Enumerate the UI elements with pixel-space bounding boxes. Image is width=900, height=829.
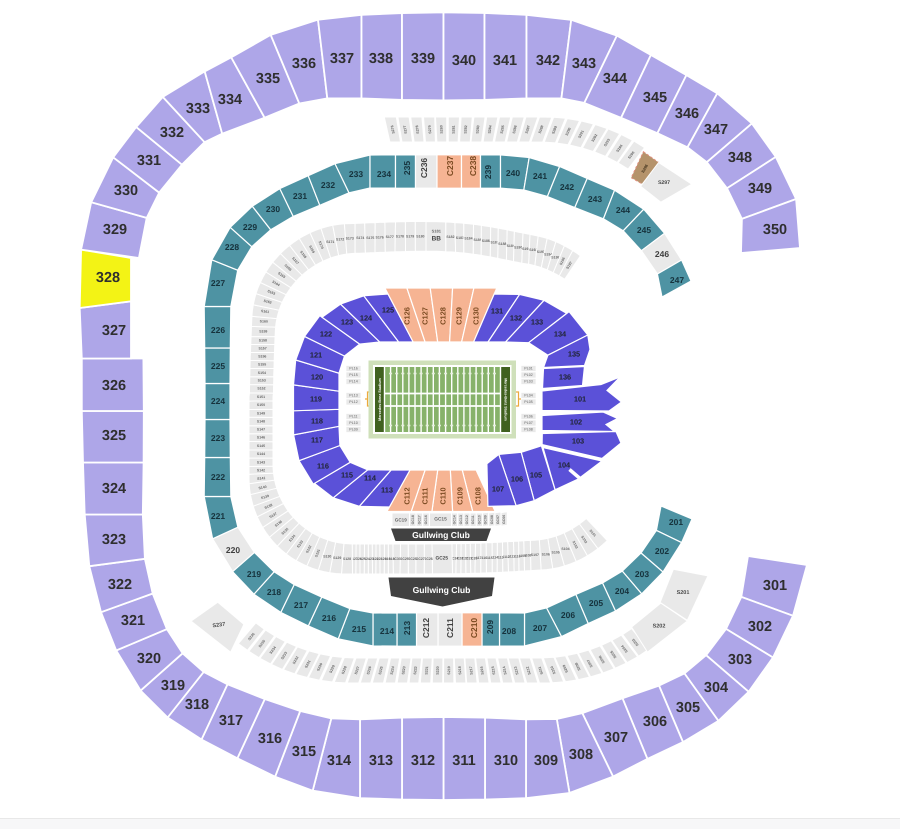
svg-text:204: 204 (615, 586, 629, 596)
svg-text:PL07: PL07 (524, 421, 532, 425)
svg-text:PL10: PL10 (349, 421, 357, 425)
svg-text:218: 218 (267, 587, 281, 597)
svg-text:214: 214 (380, 626, 394, 636)
svg-text:GC29: GC29 (400, 557, 409, 561)
svg-text:S172: S172 (336, 238, 344, 242)
svg-text:GC17: GC17 (417, 515, 421, 524)
svg-text:S143: S143 (257, 460, 265, 464)
svg-text:310: 310 (494, 753, 518, 769)
svg-text:S282: S282 (464, 125, 469, 134)
svg-text:213: 213 (402, 621, 412, 635)
svg-text:GC28: GC28 (408, 557, 417, 561)
svg-text:234: 234 (377, 169, 391, 179)
svg-text:233: 233 (349, 169, 363, 179)
svg-text:216: 216 (322, 613, 336, 623)
svg-text:S174: S174 (356, 236, 364, 240)
svg-text:328: 328 (96, 270, 120, 286)
svg-text:102: 102 (570, 418, 582, 427)
svg-text:S188: S188 (498, 242, 506, 246)
svg-text:322: 322 (108, 577, 132, 593)
svg-text:S128: S128 (343, 557, 351, 561)
svg-text:PL04: PL04 (524, 394, 532, 398)
svg-text:S150: S150 (257, 403, 265, 407)
svg-text:C129: C129 (455, 307, 464, 325)
svg-text:124: 124 (360, 314, 373, 323)
svg-text:105: 105 (530, 471, 542, 480)
svg-text:223: 223 (211, 433, 225, 443)
svg-text:C236: C236 (419, 158, 429, 179)
svg-text:349: 349 (748, 181, 772, 197)
svg-text:301: 301 (763, 578, 787, 594)
svg-text:134: 134 (554, 330, 567, 339)
svg-text:240: 240 (506, 168, 520, 178)
svg-text:342: 342 (536, 53, 560, 69)
svg-text:PL12: PL12 (349, 400, 357, 404)
svg-text:Mercedes-Benz Stadium: Mercedes-Benz Stadium (504, 378, 508, 421)
svg-text:114: 114 (364, 474, 377, 483)
svg-text:PL03: PL03 (524, 380, 532, 384)
svg-text:239: 239 (483, 165, 493, 179)
svg-text:201: 201 (669, 517, 683, 527)
svg-text:S182: S182 (446, 235, 454, 239)
svg-text:335: 335 (256, 71, 280, 87)
svg-text:202: 202 (655, 546, 669, 556)
svg-text:324: 324 (102, 481, 126, 497)
svg-text:313: 313 (369, 753, 393, 769)
svg-text:GC26: GC26 (424, 557, 433, 561)
svg-text:135: 135 (568, 350, 580, 359)
svg-text:C126: C126 (403, 307, 412, 325)
svg-text:103: 103 (572, 437, 584, 446)
svg-text:113: 113 (381, 486, 393, 495)
svg-text:336: 336 (292, 56, 316, 72)
svg-text:350: 350 (763, 222, 787, 238)
svg-text:GC10: GC10 (477, 515, 481, 524)
svg-text:C130: C130 (472, 307, 481, 325)
svg-text:PL02: PL02 (524, 373, 532, 377)
svg-text:247: 247 (670, 275, 684, 285)
svg-text:S147: S147 (257, 428, 265, 432)
svg-text:S158: S158 (259, 339, 267, 343)
svg-text:C211: C211 (445, 618, 455, 638)
svg-text:241: 241 (533, 171, 547, 181)
svg-text:S177: S177 (386, 235, 394, 239)
svg-text:C108: C108 (474, 487, 483, 505)
svg-text:GC12: GC12 (465, 515, 469, 524)
svg-text:GC19: GC19 (395, 517, 407, 522)
svg-text:229: 229 (243, 222, 257, 232)
svg-text:348: 348 (728, 150, 752, 166)
svg-text:232: 232 (321, 180, 335, 190)
svg-text:PL11: PL11 (349, 415, 357, 419)
svg-text:S185: S185 (474, 238, 482, 242)
svg-text:S148: S148 (257, 419, 265, 423)
svg-text:S156: S156 (258, 355, 266, 359)
svg-text:321: 321 (121, 613, 145, 629)
svg-text:340: 340 (452, 53, 476, 69)
svg-text:S173: S173 (346, 237, 354, 241)
svg-text:339: 339 (411, 51, 435, 67)
svg-text:C111: C111 (421, 488, 430, 505)
svg-text:243: 243 (588, 194, 602, 204)
svg-text:GC13: GC13 (459, 515, 463, 524)
svg-text:S178: S178 (396, 235, 404, 239)
svg-text:PL01: PL01 (524, 367, 532, 371)
svg-text:315: 315 (292, 744, 316, 760)
svg-text:S281: S281 (452, 125, 456, 133)
svg-text:332: 332 (160, 125, 184, 141)
svg-text:S219: S219 (447, 666, 451, 674)
svg-text:225: 225 (211, 361, 225, 371)
svg-text:PL06: PL06 (524, 415, 532, 419)
svg-text:GC18: GC18 (411, 515, 415, 524)
svg-text:S157: S157 (259, 346, 267, 350)
svg-text:320: 320 (137, 651, 161, 667)
svg-text:222: 222 (211, 472, 225, 482)
svg-text:GC07: GC07 (496, 515, 500, 524)
svg-text:207: 207 (533, 623, 547, 633)
svg-text:217: 217 (294, 600, 308, 610)
svg-text:106: 106 (511, 475, 523, 484)
svg-text:S201: S201 (677, 590, 690, 596)
svg-text:118: 118 (311, 417, 323, 426)
svg-text:S159: S159 (259, 330, 267, 334)
svg-text:S190: S190 (514, 245, 522, 249)
svg-text:C238: C238 (468, 156, 478, 177)
svg-text:206: 206 (561, 610, 575, 620)
svg-text:C210: C210 (469, 618, 479, 639)
svg-text:S141: S141 (257, 476, 266, 481)
svg-text:203: 203 (635, 569, 649, 579)
svg-text:215: 215 (352, 624, 366, 634)
svg-text:GC25: GC25 (436, 555, 449, 561)
svg-text:227: 227 (211, 278, 225, 288)
svg-text:S221: S221 (424, 666, 429, 675)
svg-text:S195: S195 (551, 256, 559, 260)
svg-text:224: 224 (211, 396, 225, 406)
svg-text:244: 244 (616, 205, 630, 215)
svg-text:S155: S155 (258, 363, 266, 367)
svg-text:120: 120 (311, 373, 323, 382)
svg-text:GC11: GC11 (471, 515, 475, 524)
svg-text:226: 226 (211, 325, 225, 335)
svg-text:246: 246 (655, 249, 669, 259)
svg-text:219: 219 (247, 569, 261, 579)
svg-text:338: 338 (369, 51, 393, 67)
svg-text:C127: C127 (421, 307, 430, 325)
svg-text:C110: C110 (439, 487, 448, 504)
svg-text:242: 242 (560, 182, 574, 192)
svg-text:323: 323 (102, 532, 126, 548)
svg-text:326: 326 (102, 378, 126, 394)
svg-text:S105: S105 (552, 550, 560, 554)
svg-text:314: 314 (327, 753, 351, 769)
svg-text:115: 115 (341, 471, 353, 480)
svg-text:C128: C128 (439, 307, 448, 325)
svg-text:312: 312 (411, 753, 435, 769)
svg-text:S151: S151 (257, 395, 265, 399)
svg-text:101: 101 (574, 395, 586, 404)
svg-text:S145: S145 (257, 444, 265, 448)
svg-text:131: 131 (491, 307, 503, 316)
svg-text:S176: S176 (376, 235, 384, 239)
svg-text:235: 235 (402, 161, 412, 175)
svg-text:PL16: PL16 (349, 367, 357, 371)
svg-text:S297: S297 (658, 180, 670, 186)
svg-text:343: 343 (572, 56, 596, 72)
svg-text:208: 208 (502, 626, 516, 636)
svg-text:334: 334 (218, 92, 242, 108)
svg-text:S129: S129 (333, 556, 341, 560)
svg-text:S179: S179 (406, 235, 414, 239)
svg-text:305: 305 (676, 700, 700, 716)
svg-text:Gullwing Club: Gullwing Club (412, 530, 470, 540)
svg-text:318: 318 (185, 697, 209, 713)
svg-text:205: 205 (589, 598, 603, 608)
svg-text:327: 327 (102, 323, 126, 339)
svg-text:S104: S104 (561, 547, 569, 551)
svg-text:228: 228 (225, 242, 239, 252)
svg-text:C109: C109 (456, 487, 465, 505)
svg-text:311: 311 (452, 753, 475, 769)
svg-text:122: 122 (320, 330, 332, 339)
svg-text:PL08: PL08 (524, 428, 532, 432)
svg-text:121: 121 (310, 351, 322, 360)
svg-text:117: 117 (311, 436, 323, 445)
svg-text:319: 319 (161, 678, 185, 694)
svg-text:S202: S202 (653, 624, 666, 630)
svg-text:PL09: PL09 (349, 428, 357, 432)
svg-text:Gullwing Club: Gullwing Club (413, 585, 471, 595)
svg-text:341: 341 (493, 53, 517, 69)
svg-text:S175: S175 (366, 236, 374, 240)
svg-text:307: 307 (604, 730, 628, 746)
svg-text:345: 345 (643, 90, 667, 106)
svg-text:309: 309 (534, 753, 558, 769)
svg-text:S107: S107 (531, 553, 539, 557)
svg-text:302: 302 (748, 619, 772, 635)
svg-text:GC27: GC27 (416, 557, 425, 561)
svg-text:GC06: GC06 (502, 515, 506, 524)
svg-text:337: 337 (330, 51, 354, 67)
svg-text:S180: S180 (416, 234, 424, 238)
svg-text:107: 107 (492, 485, 504, 494)
svg-text:PL13: PL13 (349, 394, 357, 398)
svg-text:304: 304 (704, 680, 728, 696)
svg-text:308: 308 (569, 747, 593, 763)
svg-text:S160: S160 (260, 319, 268, 323)
svg-text:PL14: PL14 (349, 380, 357, 384)
svg-text:220: 220 (226, 545, 240, 555)
svg-text:116: 116 (317, 462, 329, 471)
svg-text:330: 330 (114, 183, 138, 199)
svg-text:S152: S152 (257, 387, 265, 391)
svg-text:PL05: PL05 (524, 400, 532, 404)
svg-text:S149: S149 (257, 411, 265, 415)
svg-text:S218: S218 (458, 666, 462, 675)
svg-text:S171: S171 (326, 240, 334, 244)
svg-text:S154: S154 (258, 371, 266, 375)
svg-text:S153: S153 (258, 379, 266, 383)
svg-text:230: 230 (266, 204, 280, 214)
svg-text:S280: S280 (440, 125, 444, 133)
svg-text:125: 125 (382, 306, 394, 315)
svg-text:GC16: GC16 (424, 515, 428, 524)
svg-text:231: 231 (293, 191, 307, 201)
svg-text:C212: C212 (421, 618, 431, 639)
svg-text:119: 119 (310, 395, 322, 404)
svg-text:S217: S217 (469, 666, 474, 675)
svg-text:136: 136 (559, 373, 571, 382)
svg-text:221: 221 (211, 511, 225, 521)
svg-text:346: 346 (675, 106, 699, 122)
svg-text:325: 325 (102, 428, 126, 444)
svg-text:123: 123 (341, 318, 353, 327)
svg-text:S220: S220 (436, 666, 440, 675)
svg-text:S146: S146 (257, 436, 265, 440)
svg-text:317: 317 (219, 713, 243, 729)
svg-text:S181: S181 (432, 229, 442, 234)
svg-text:133: 133 (531, 318, 543, 327)
svg-text:GC15: GC15 (434, 516, 447, 522)
svg-text:303: 303 (728, 652, 752, 668)
svg-text:209: 209 (485, 620, 495, 634)
svg-text:BB: BB (432, 236, 442, 243)
svg-text:331: 331 (137, 153, 161, 169)
svg-text:132: 132 (510, 314, 522, 323)
svg-text:S106: S106 (542, 552, 550, 556)
svg-text:GC14: GC14 (453, 515, 457, 524)
svg-text:329: 329 (103, 222, 127, 238)
svg-text:GC09: GC09 (484, 515, 488, 524)
svg-text:S184: S184 (464, 237, 472, 241)
svg-text:104: 104 (558, 461, 571, 470)
svg-text:245: 245 (637, 225, 651, 235)
svg-text:S130: S130 (323, 554, 331, 558)
svg-text:PL15: PL15 (349, 373, 357, 377)
svg-text:344: 344 (603, 71, 627, 87)
svg-text:347: 347 (704, 122, 728, 138)
svg-text:C237: C237 (445, 156, 455, 177)
svg-text:C112: C112 (403, 487, 412, 504)
svg-text:306: 306 (643, 714, 667, 730)
svg-text:S142: S142 (257, 468, 265, 472)
svg-text:S183: S183 (456, 236, 464, 240)
svg-text:GC08: GC08 (490, 515, 494, 524)
svg-text:316: 316 (258, 731, 282, 747)
svg-text:S186: S186 (482, 239, 490, 243)
svg-text:S279: S279 (428, 125, 433, 134)
svg-text:Mercedes-Benz Stadium: Mercedes-Benz Stadium (378, 377, 382, 420)
svg-text:333: 333 (186, 101, 210, 117)
svg-text:S144: S144 (257, 452, 265, 456)
